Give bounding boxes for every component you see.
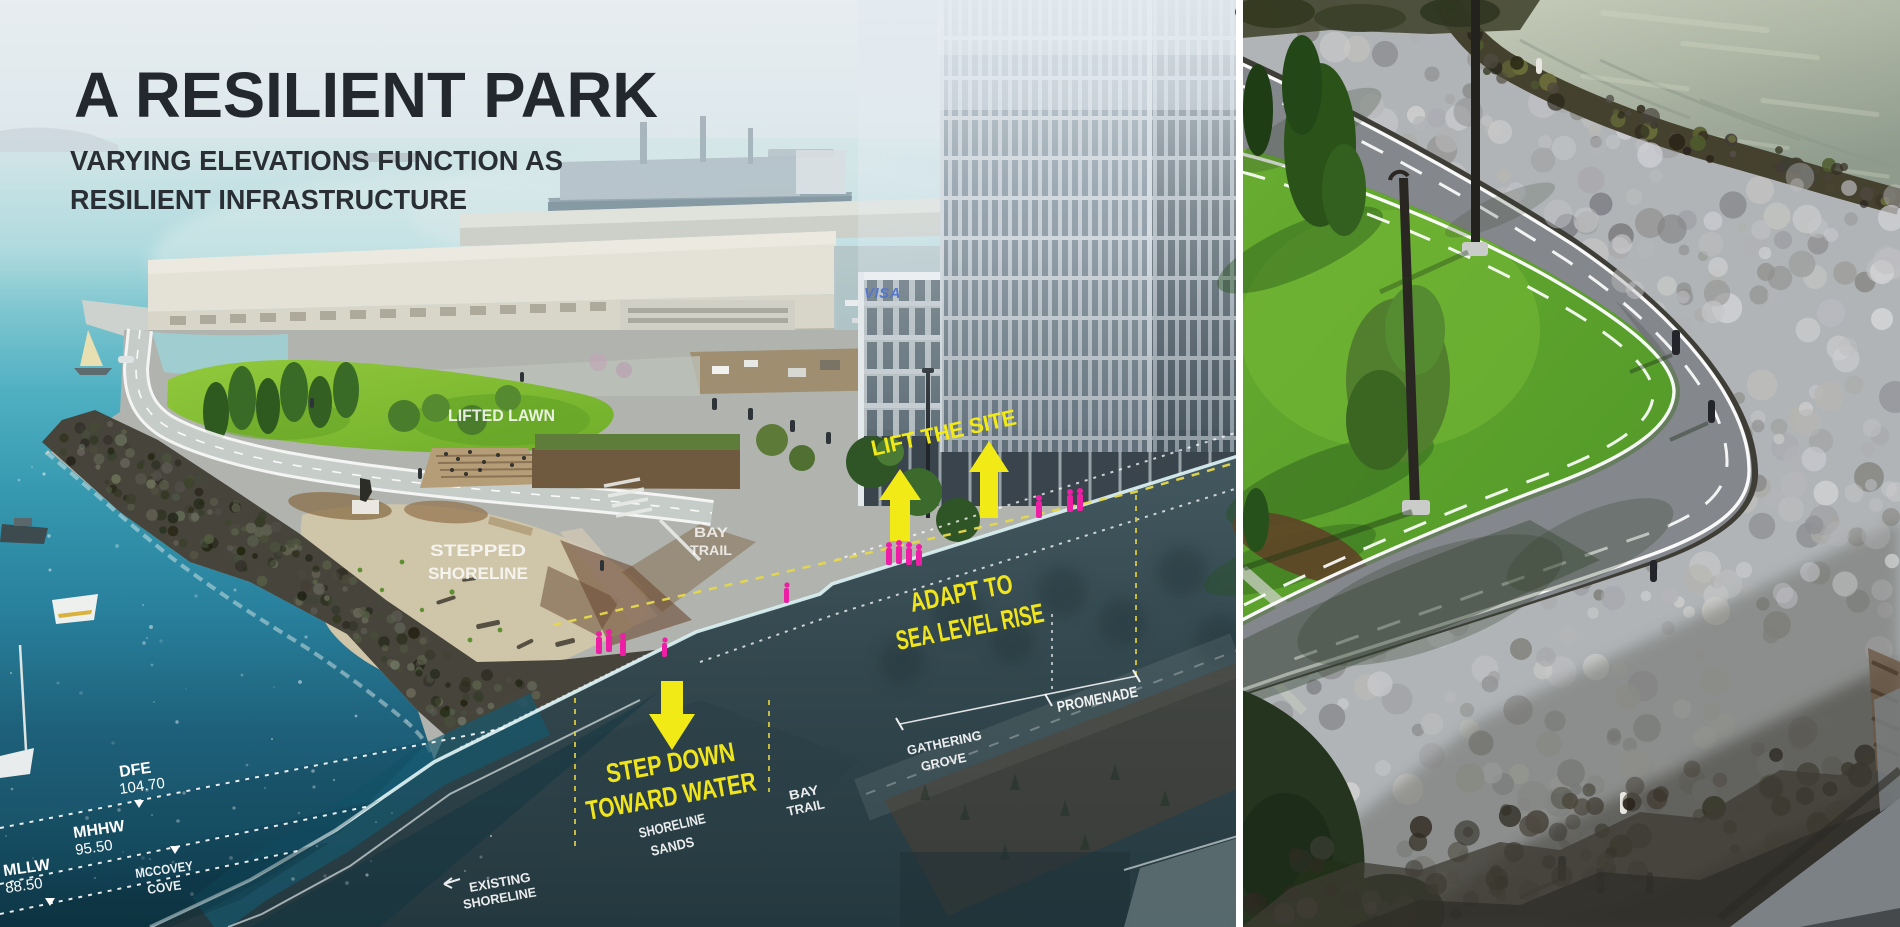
- svg-text:LIFTED LAWN: LIFTED LAWN: [448, 406, 555, 425]
- svg-text:RESILIENT INFRASTRUCTURE: RESILIENT INFRASTRUCTURE: [70, 184, 467, 215]
- svg-text:BAY: BAY: [694, 524, 729, 540]
- svg-text:A RESILIENT PARK: A RESILIENT PARK: [74, 59, 658, 131]
- svg-text:SHORELINE: SHORELINE: [428, 564, 528, 583]
- svg-text:TRAIL: TRAIL: [690, 542, 732, 558]
- svg-text:VARYING ELEVATIONS FUNCTION AS: VARYING ELEVATIONS FUNCTION AS: [70, 145, 563, 176]
- svg-text:STEPPED: STEPPED: [430, 541, 526, 560]
